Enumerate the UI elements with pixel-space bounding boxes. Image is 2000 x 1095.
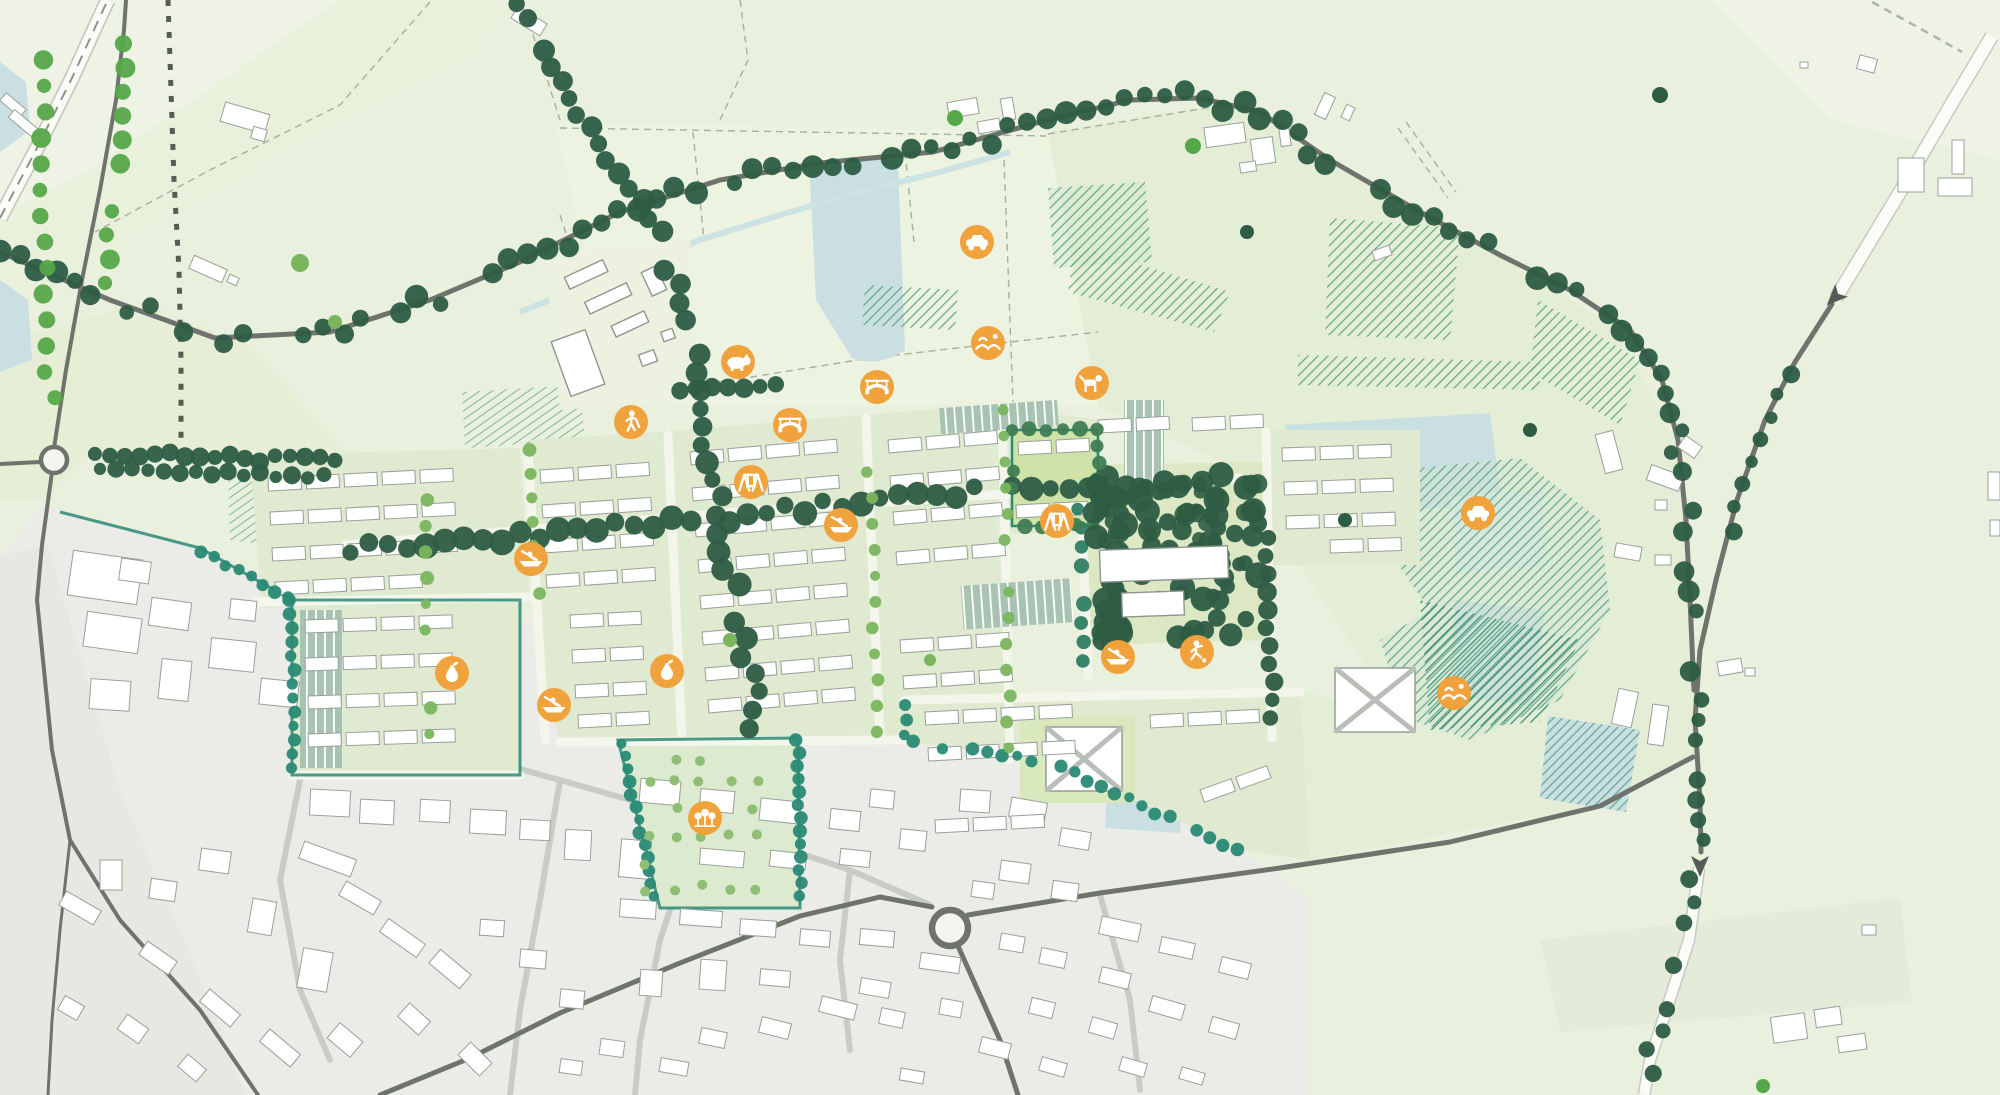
tree <box>283 449 297 463</box>
tree <box>1004 587 1015 598</box>
tree <box>234 564 245 575</box>
tree <box>32 208 48 224</box>
building <box>999 860 1031 884</box>
house <box>926 434 960 450</box>
house <box>941 671 975 686</box>
tree <box>1639 1041 1655 1057</box>
tree <box>34 284 53 303</box>
building <box>939 998 963 1018</box>
tree <box>1137 87 1153 103</box>
boating-west-icon <box>824 508 858 542</box>
tree <box>288 663 302 677</box>
house <box>768 479 802 495</box>
masterplan-map <box>0 0 2000 1095</box>
tree <box>866 622 879 635</box>
tree <box>1105 514 1121 530</box>
tree <box>38 311 55 328</box>
tree <box>899 699 911 711</box>
building <box>469 809 506 835</box>
tree <box>814 493 830 509</box>
tree <box>593 215 610 232</box>
tree <box>861 466 872 477</box>
house <box>963 708 997 723</box>
tree <box>1238 611 1254 627</box>
tree <box>1206 589 1220 603</box>
boating-south-icon <box>537 688 571 722</box>
tree <box>616 739 626 749</box>
tree <box>1547 272 1568 293</box>
tree <box>420 625 431 636</box>
tree <box>295 327 311 343</box>
tree <box>115 84 131 100</box>
tree <box>746 664 765 683</box>
tree <box>962 132 976 146</box>
house <box>351 576 385 591</box>
tree <box>1060 479 1080 499</box>
tree <box>1725 523 1743 541</box>
icon-circle <box>971 326 1005 360</box>
tree <box>98 276 112 290</box>
tree <box>452 527 476 551</box>
tree <box>287 678 298 689</box>
tree <box>34 50 53 69</box>
tree <box>998 405 1009 416</box>
tree <box>763 157 781 175</box>
tree <box>737 503 759 525</box>
house <box>705 665 739 681</box>
tree <box>1569 282 1584 297</box>
tree <box>146 446 163 463</box>
tree <box>1157 88 1172 103</box>
tree <box>190 448 209 467</box>
tree <box>483 263 503 283</box>
house <box>575 683 609 698</box>
tree <box>156 463 172 479</box>
tree <box>1095 780 1108 793</box>
tree <box>784 162 801 179</box>
orchard-tree <box>645 777 655 787</box>
house <box>812 547 846 563</box>
tree <box>142 297 159 314</box>
building <box>1837 1033 1867 1053</box>
house <box>313 578 347 593</box>
roundabout-west <box>41 447 67 473</box>
house <box>618 497 652 512</box>
building <box>1800 62 1808 68</box>
house <box>572 648 606 663</box>
tree <box>866 518 878 530</box>
tree <box>80 285 100 305</box>
tree <box>312 449 328 465</box>
tree <box>498 248 519 269</box>
tree <box>1096 503 1109 516</box>
tree <box>671 382 689 400</box>
tree <box>727 176 742 191</box>
tree <box>31 128 51 148</box>
tree <box>285 635 298 648</box>
tree <box>1639 348 1658 367</box>
house <box>381 616 414 630</box>
tree <box>1265 673 1283 691</box>
tree <box>634 815 644 825</box>
house <box>540 468 574 483</box>
house <box>382 470 416 485</box>
tree <box>790 759 803 772</box>
house <box>1368 538 1401 552</box>
tree <box>1003 612 1015 624</box>
tree <box>1004 690 1017 703</box>
building <box>1239 161 1256 173</box>
tree <box>1000 664 1012 676</box>
tree <box>421 599 431 609</box>
tree <box>1164 810 1177 823</box>
orchard-tree <box>725 885 735 895</box>
boating-southwest-icon <box>514 542 548 576</box>
tree <box>533 587 546 600</box>
tree <box>107 461 124 478</box>
tree <box>111 154 131 174</box>
tree <box>359 533 378 552</box>
tree <box>1219 623 1242 646</box>
tree <box>900 714 913 727</box>
tree <box>982 135 1002 155</box>
tree <box>287 748 298 759</box>
house <box>308 695 341 709</box>
house <box>1136 416 1170 431</box>
tree <box>1000 457 1011 468</box>
house <box>1226 709 1260 724</box>
house <box>570 613 604 628</box>
tree <box>728 573 752 597</box>
tree <box>1017 519 1032 534</box>
play-swings-west-icon <box>734 465 768 499</box>
tree <box>316 467 331 482</box>
tree <box>1692 713 1706 727</box>
tree <box>735 627 758 650</box>
tree <box>1290 123 1308 141</box>
orchard-tree <box>753 776 763 786</box>
icon-circle <box>734 465 768 499</box>
house <box>1322 480 1355 494</box>
tree <box>1263 710 1279 726</box>
tree <box>795 877 807 889</box>
tree <box>742 158 763 179</box>
house <box>700 593 734 609</box>
building <box>899 829 927 852</box>
tree <box>37 234 54 251</box>
tree <box>735 379 754 398</box>
icon-circle <box>824 508 858 542</box>
tree <box>1004 743 1015 754</box>
tree <box>906 482 929 505</box>
tree <box>660 506 684 530</box>
tree <box>681 511 702 532</box>
tree <box>1076 596 1092 612</box>
tree <box>795 838 806 849</box>
house <box>973 816 1007 831</box>
building <box>519 819 550 841</box>
tree <box>1092 456 1106 470</box>
tree <box>526 492 537 503</box>
tree <box>871 726 883 738</box>
house <box>343 618 376 632</box>
tree <box>1687 895 1701 909</box>
house <box>806 475 840 491</box>
house <box>888 437 922 453</box>
building <box>359 799 394 825</box>
tree <box>124 461 140 477</box>
tree <box>1071 503 1084 516</box>
building <box>229 599 257 622</box>
house <box>903 674 937 689</box>
tree <box>37 103 54 120</box>
tree <box>113 130 132 149</box>
tree <box>88 447 102 461</box>
tree <box>693 417 713 437</box>
tree <box>1745 456 1757 468</box>
tree <box>1012 751 1022 761</box>
tree <box>207 450 222 465</box>
building <box>519 949 546 969</box>
icon-circle <box>1437 676 1471 710</box>
tree <box>424 701 437 714</box>
house <box>778 623 812 639</box>
tree <box>288 706 301 719</box>
tree <box>1656 1023 1671 1038</box>
tree <box>792 785 806 799</box>
tree <box>219 463 236 480</box>
tree <box>844 158 862 176</box>
tree <box>1657 385 1674 402</box>
house <box>708 697 742 713</box>
house <box>819 655 853 671</box>
tree <box>268 448 283 463</box>
tree <box>901 139 921 159</box>
tree <box>1040 424 1053 437</box>
tree <box>999 431 1010 442</box>
house <box>616 711 650 726</box>
tree <box>581 116 602 137</box>
house <box>1358 444 1391 458</box>
building <box>599 1038 625 1057</box>
tree <box>1240 225 1254 239</box>
icon-circle <box>537 688 571 722</box>
tree <box>1022 421 1037 436</box>
house <box>900 638 934 653</box>
tree <box>590 135 607 152</box>
house <box>346 732 379 746</box>
house <box>381 654 414 668</box>
tree <box>1480 233 1498 251</box>
tree <box>1676 915 1693 932</box>
tree <box>523 443 537 457</box>
tree <box>268 585 282 599</box>
tree <box>630 800 643 813</box>
tree <box>1734 476 1750 492</box>
orchard-tree <box>672 832 682 842</box>
tree <box>1185 138 1201 154</box>
tree <box>342 545 358 561</box>
tree <box>703 378 721 396</box>
house <box>384 692 417 706</box>
tree <box>1687 791 1705 809</box>
tree <box>649 891 659 901</box>
tree <box>1673 462 1692 481</box>
tree <box>567 106 585 124</box>
tree <box>924 139 938 153</box>
tree <box>751 683 768 700</box>
tree <box>67 273 83 289</box>
house <box>610 646 644 661</box>
tree <box>1018 113 1036 131</box>
house <box>736 554 770 570</box>
building <box>1814 1006 1842 1027</box>
tree <box>1258 600 1277 619</box>
tree <box>1660 403 1680 423</box>
tree <box>573 220 593 240</box>
tree <box>1248 107 1271 130</box>
house <box>584 570 618 585</box>
building <box>209 638 257 673</box>
house <box>776 587 810 603</box>
tree <box>536 238 558 260</box>
house <box>804 439 838 455</box>
orchard-tree <box>672 803 682 813</box>
tree <box>1523 423 1537 437</box>
tree <box>189 465 203 479</box>
map-canvas <box>0 0 2000 1095</box>
orchard-tree <box>695 756 705 766</box>
tree <box>730 647 751 668</box>
school-building <box>1099 546 1228 582</box>
car-access-east-icon <box>1461 496 1495 530</box>
tree <box>114 107 132 125</box>
tree <box>1206 486 1226 506</box>
tree <box>622 763 633 774</box>
house <box>1150 713 1184 728</box>
orchard-tree <box>697 880 707 890</box>
building <box>83 611 142 653</box>
tree <box>1689 604 1704 619</box>
house <box>1360 478 1393 492</box>
tree <box>1265 693 1279 707</box>
tree <box>1425 207 1443 225</box>
tree <box>794 811 808 825</box>
tree <box>1208 462 1233 487</box>
house <box>1286 515 1319 529</box>
building <box>559 989 585 1009</box>
tree <box>633 189 656 212</box>
tree <box>740 719 759 738</box>
tree <box>1212 100 1234 122</box>
house <box>1230 414 1264 429</box>
building <box>1655 555 1671 565</box>
house <box>1362 512 1395 526</box>
house <box>384 730 417 744</box>
building <box>479 919 504 937</box>
tree <box>39 260 55 276</box>
tree <box>33 183 48 198</box>
tree <box>285 621 298 634</box>
tree <box>1653 365 1670 382</box>
house <box>935 818 969 833</box>
house <box>308 508 342 523</box>
icon-circle <box>1101 640 1135 674</box>
tree <box>1273 110 1293 130</box>
tree <box>1002 508 1014 520</box>
tree <box>1458 231 1475 248</box>
tree <box>115 58 135 78</box>
building <box>559 1059 583 1076</box>
tree <box>390 302 411 323</box>
house <box>774 551 808 567</box>
tree <box>1037 108 1058 129</box>
orchard-tree <box>752 830 762 840</box>
tree <box>37 364 52 379</box>
building <box>739 919 776 937</box>
tree <box>421 493 435 507</box>
tree <box>1194 477 1207 490</box>
tree <box>866 492 878 504</box>
house <box>822 687 856 703</box>
tree <box>1765 412 1777 424</box>
building <box>1051 880 1079 901</box>
tree <box>789 733 802 746</box>
tree <box>1108 787 1121 800</box>
building <box>1745 668 1755 676</box>
building <box>419 799 450 823</box>
tree <box>872 673 885 686</box>
orchard-tree <box>644 831 654 841</box>
building <box>829 808 861 831</box>
house <box>814 583 848 599</box>
house <box>420 468 454 483</box>
tree <box>966 742 979 755</box>
tree <box>888 484 909 505</box>
building <box>699 959 727 991</box>
tree <box>1074 558 1089 573</box>
tree <box>1000 716 1013 729</box>
tree <box>220 560 231 571</box>
tree <box>1258 548 1274 564</box>
tree <box>670 274 691 295</box>
tree <box>203 466 220 483</box>
house <box>1282 447 1315 461</box>
tree <box>608 200 626 218</box>
tree <box>11 245 30 264</box>
house <box>925 710 959 725</box>
tree <box>1007 465 1020 478</box>
building <box>839 848 871 867</box>
community-orchard-icon <box>688 801 722 835</box>
tree <box>621 751 632 762</box>
tree <box>257 579 269 591</box>
house <box>310 544 344 559</box>
house <box>728 446 762 462</box>
tree <box>768 376 784 392</box>
tree <box>1525 266 1549 290</box>
tree <box>105 204 119 218</box>
tree <box>623 775 637 789</box>
building <box>100 860 122 890</box>
tree <box>94 463 106 475</box>
house <box>1284 481 1317 495</box>
building <box>1655 500 1667 510</box>
tree <box>1673 522 1693 542</box>
tree <box>194 546 207 559</box>
building <box>89 679 131 712</box>
icon-circle <box>1040 504 1074 538</box>
